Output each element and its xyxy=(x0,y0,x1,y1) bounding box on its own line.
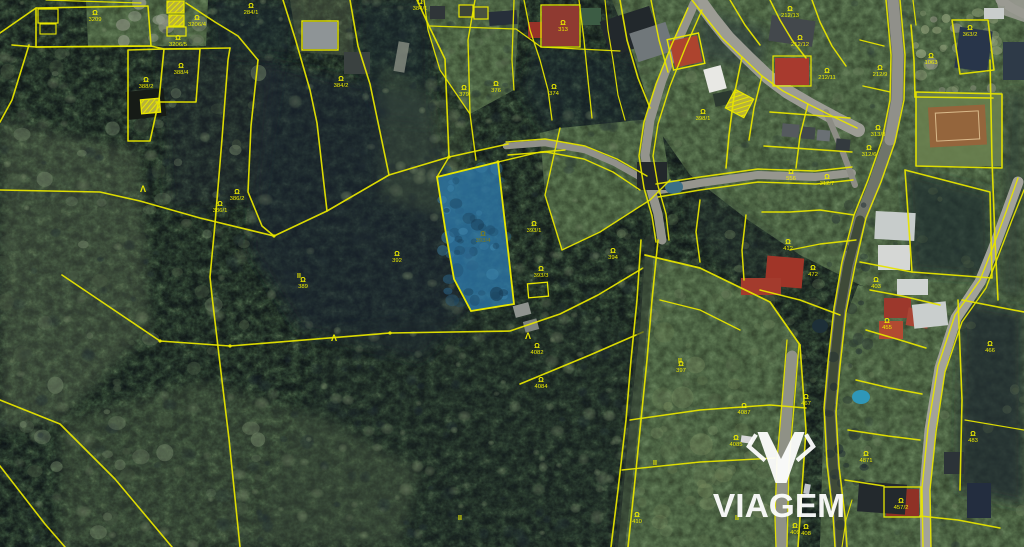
svg-text:Ω: Ω xyxy=(143,77,149,84)
svg-text:212/13: 212/13 xyxy=(781,13,800,19)
svg-text:389: 389 xyxy=(298,284,308,290)
svg-text:212/12: 212/12 xyxy=(791,42,809,48)
svg-text:Ω: Ω xyxy=(493,81,499,88)
svg-text:409: 409 xyxy=(790,530,800,536)
svg-text:Ω: Ω xyxy=(217,201,223,208)
svg-text:Λ: Λ xyxy=(331,333,337,343)
svg-text:393/3: 393/3 xyxy=(534,273,549,279)
svg-text:3206/5: 3206/5 xyxy=(169,42,188,48)
svg-text:Ω: Ω xyxy=(700,109,706,116)
svg-text:212/11: 212/11 xyxy=(818,75,836,81)
svg-text:455: 455 xyxy=(882,325,893,331)
svg-text:Ω: Ω xyxy=(338,76,344,83)
svg-text:Ω: Ω xyxy=(967,25,973,32)
svg-text:483: 483 xyxy=(968,438,979,444)
svg-text:II: II xyxy=(458,515,462,522)
svg-text:Ω: Ω xyxy=(863,451,869,458)
svg-text:466: 466 xyxy=(985,348,996,354)
svg-text:392: 392 xyxy=(392,258,402,264)
svg-text:1063: 1063 xyxy=(924,60,938,66)
svg-text:4087: 4087 xyxy=(737,410,750,416)
svg-text:393/4: 393/4 xyxy=(476,238,491,244)
svg-text:Ω: Ω xyxy=(741,403,747,410)
svg-text:Ω: Ω xyxy=(824,68,830,75)
svg-text:3209: 3209 xyxy=(88,17,101,23)
svg-text:386/1: 386/1 xyxy=(213,208,228,214)
svg-text:412: 412 xyxy=(783,246,793,252)
svg-text:Ω: Ω xyxy=(194,15,200,22)
svg-text:Ω: Ω xyxy=(866,145,872,152)
svg-text:Ω: Ω xyxy=(824,174,830,181)
svg-text:Ω: Ω xyxy=(178,63,184,70)
svg-text:Ω: Ω xyxy=(394,251,400,258)
svg-text:212/9: 212/9 xyxy=(873,72,888,78)
svg-text:388/4: 388/4 xyxy=(174,70,189,76)
svg-text:Ω: Ω xyxy=(803,524,809,531)
svg-text:313/8: 313/8 xyxy=(871,132,886,138)
svg-text:Ω: Ω xyxy=(928,53,934,60)
svg-text:384/2: 384/2 xyxy=(334,83,349,89)
svg-text:Ω: Ω xyxy=(92,10,98,17)
svg-text:Ω: Ω xyxy=(873,277,879,284)
svg-text:313: 313 xyxy=(558,27,569,33)
svg-text:457/2: 457/2 xyxy=(894,505,909,511)
svg-text:384/1: 384/1 xyxy=(413,6,428,12)
svg-text:363/2: 363/2 xyxy=(963,32,978,38)
svg-text:556: 556 xyxy=(786,176,797,182)
svg-text:Ω: Ω xyxy=(733,435,739,442)
svg-text:Ω: Ω xyxy=(560,20,566,27)
svg-text:Ω: Ω xyxy=(248,3,254,10)
svg-text:Ω: Ω xyxy=(787,6,793,13)
svg-text:Ω: Ω xyxy=(970,431,976,438)
svg-text:4871: 4871 xyxy=(859,458,872,464)
svg-text:Ω: Ω xyxy=(634,512,640,519)
svg-text:Ω: Ω xyxy=(480,231,486,238)
svg-text:Ω: Ω xyxy=(538,266,544,273)
svg-text:374: 374 xyxy=(549,91,560,97)
svg-text:4084: 4084 xyxy=(534,384,548,390)
svg-text:Ω: Ω xyxy=(875,125,881,132)
svg-text:II: II xyxy=(653,460,657,467)
svg-text:Ω: Ω xyxy=(175,35,181,42)
svg-text:Ω: Ω xyxy=(461,85,467,92)
svg-text:Ω: Ω xyxy=(610,248,616,255)
svg-text:Ω: Ω xyxy=(300,277,306,284)
svg-text:Ω: Ω xyxy=(884,318,890,325)
svg-text:312/6: 312/6 xyxy=(862,152,877,158)
svg-text:Ω: Ω xyxy=(898,498,904,505)
svg-text:410: 410 xyxy=(632,519,643,525)
svg-text:II: II xyxy=(297,273,301,280)
svg-text:394: 394 xyxy=(608,255,619,261)
svg-text:Ω: Ω xyxy=(987,341,993,348)
svg-text:Λ: Λ xyxy=(140,184,146,194)
svg-text:3206/4: 3206/4 xyxy=(188,22,207,28)
svg-text:403: 403 xyxy=(871,284,882,290)
svg-text:379: 379 xyxy=(459,92,469,98)
svg-text:4085: 4085 xyxy=(729,442,743,448)
svg-text:397: 397 xyxy=(676,368,686,374)
svg-text:Ω: Ω xyxy=(534,343,540,350)
svg-text:II: II xyxy=(678,358,682,365)
svg-text:VIAGEM: VIAGEM xyxy=(713,488,845,525)
svg-text:Ω: Ω xyxy=(785,239,791,246)
svg-text:467: 467 xyxy=(801,401,811,407)
svg-text:Ω: Ω xyxy=(551,84,557,91)
svg-text:Ω: Ω xyxy=(788,169,794,176)
svg-text:Λ: Λ xyxy=(525,331,531,341)
svg-text:Ω: Ω xyxy=(234,189,240,196)
svg-text:398/1: 398/1 xyxy=(696,116,711,122)
svg-text:4082: 4082 xyxy=(530,350,543,356)
svg-text:Ω: Ω xyxy=(877,65,883,72)
svg-text:408: 408 xyxy=(801,531,812,537)
svg-text:284/1: 284/1 xyxy=(244,10,259,16)
svg-text:Ω: Ω xyxy=(803,394,809,401)
svg-text:386/2: 386/2 xyxy=(230,196,245,202)
svg-text:Ω: Ω xyxy=(538,377,544,384)
svg-text:393/1: 393/1 xyxy=(527,228,542,234)
svg-text:Ω: Ω xyxy=(531,221,537,228)
svg-text:472: 472 xyxy=(808,272,818,278)
svg-text:312/7: 312/7 xyxy=(820,181,835,187)
svg-text:376: 376 xyxy=(491,88,502,94)
svg-text:Ω: Ω xyxy=(810,265,816,272)
svg-text:Ω: Ω xyxy=(797,35,803,42)
svg-text:388/2: 388/2 xyxy=(139,84,154,90)
